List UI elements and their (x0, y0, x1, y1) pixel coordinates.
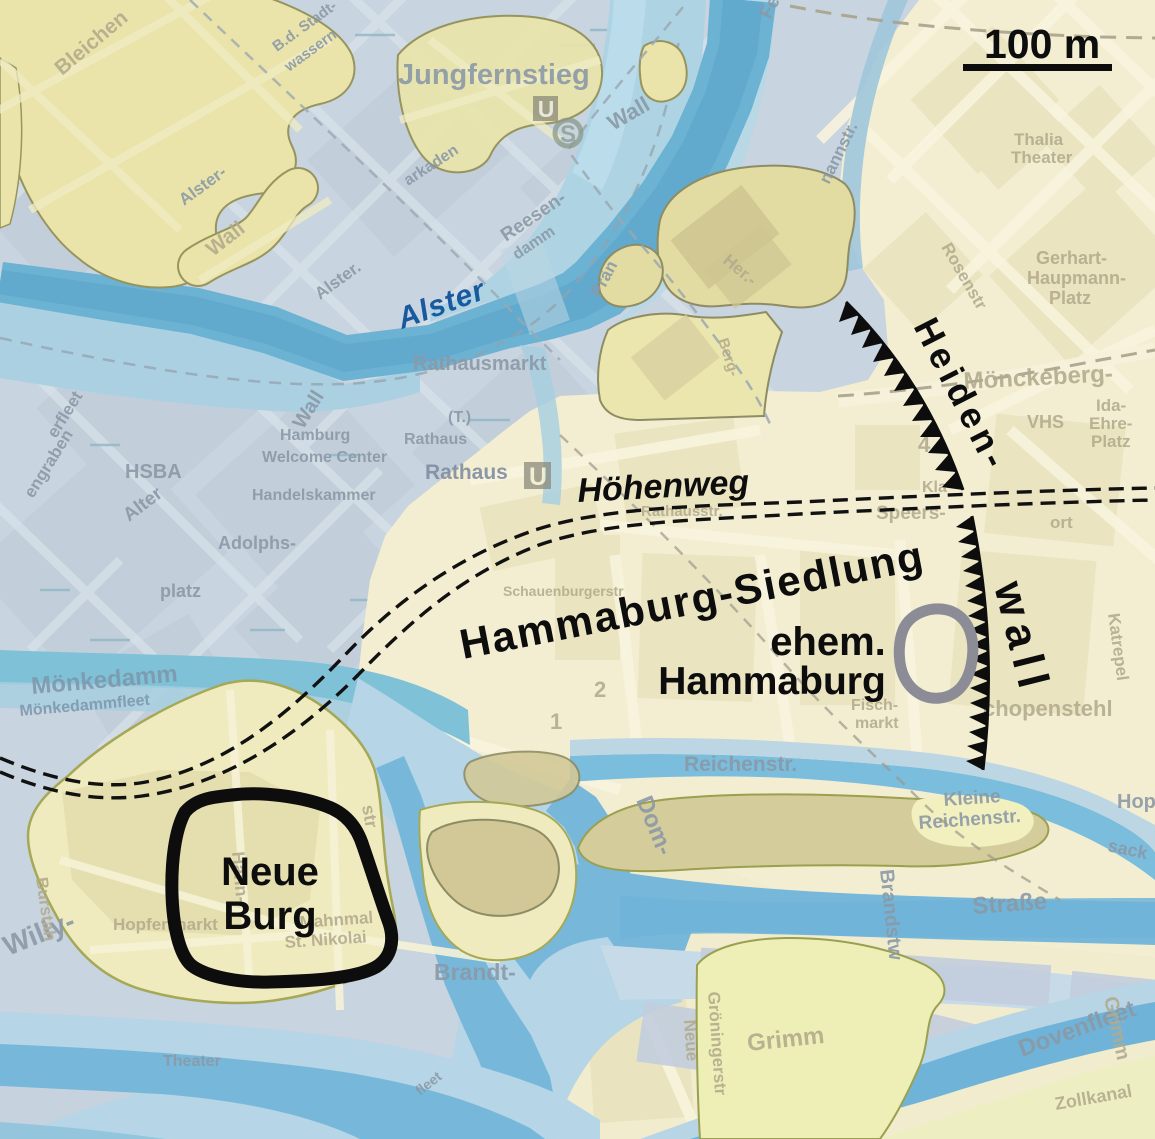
svg-text:Rathausmarkt: Rathausmarkt (413, 353, 547, 375)
svg-text:100 m: 100 m (984, 21, 1100, 67)
svg-text:Jungfernstieg: Jungfernstieg (398, 59, 590, 91)
svg-text:2: 2 (594, 677, 606, 702)
svg-text:Theater: Theater (163, 1053, 221, 1070)
svg-text:Straße: Straße (972, 888, 1048, 920)
svg-text:HSBA: HSBA (125, 461, 182, 483)
svg-text:Hopfenmarkt: Hopfenmarkt (113, 915, 218, 934)
svg-text:ehem.: ehem. (770, 620, 886, 664)
svg-text:1: 1 (550, 709, 562, 734)
svg-text:S: S (560, 121, 576, 148)
svg-text:Handelskammer: Handelskammer (252, 487, 376, 504)
svg-text:Reichenstr.: Reichenstr. (684, 753, 797, 776)
svg-text:str: str (358, 803, 382, 829)
svg-text:Brandt-: Brandt- (434, 959, 516, 985)
svg-text:markt: markt (855, 715, 899, 732)
svg-text:ort: ort (1050, 513, 1073, 532)
svg-text:Neue: Neue (221, 850, 319, 894)
svg-text:Platz: Platz (1091, 432, 1131, 451)
svg-text:Hammaburg: Hammaburg (658, 660, 886, 703)
svg-text:U: U (529, 463, 547, 491)
svg-text:chopenstehl: chopenstehl (983, 696, 1113, 721)
svg-text:Hop: Hop (1117, 791, 1155, 813)
svg-text:Welcome Center: Welcome Center (262, 449, 387, 466)
svg-text:Rathaus: Rathaus (425, 461, 508, 484)
svg-text:Ehre-: Ehre- (1089, 414, 1132, 433)
svg-text:Haupmann-: Haupmann- (1027, 268, 1126, 288)
svg-text:Theater: Theater (1011, 148, 1073, 167)
svg-text:Thalia: Thalia (1014, 130, 1064, 149)
svg-text:(T.): (T.) (448, 409, 471, 426)
svg-text:VHS: VHS (1027, 412, 1064, 432)
svg-text:Hamburg: Hamburg (280, 427, 350, 444)
svg-text:platz: platz (160, 581, 201, 601)
svg-text:U: U (538, 96, 555, 122)
svg-text:Adolphs-: Adolphs- (218, 533, 296, 553)
svg-text:Burg: Burg (223, 894, 316, 938)
svg-text:Gerhart-: Gerhart- (1036, 248, 1107, 268)
svg-text:Neue: Neue (680, 1019, 702, 1062)
svg-text:Rathaus: Rathaus (404, 431, 467, 448)
svg-text:Platz: Platz (1049, 288, 1091, 308)
svg-text:Kla: Kla (922, 479, 947, 496)
svg-text:Ida-: Ida- (1096, 396, 1126, 415)
